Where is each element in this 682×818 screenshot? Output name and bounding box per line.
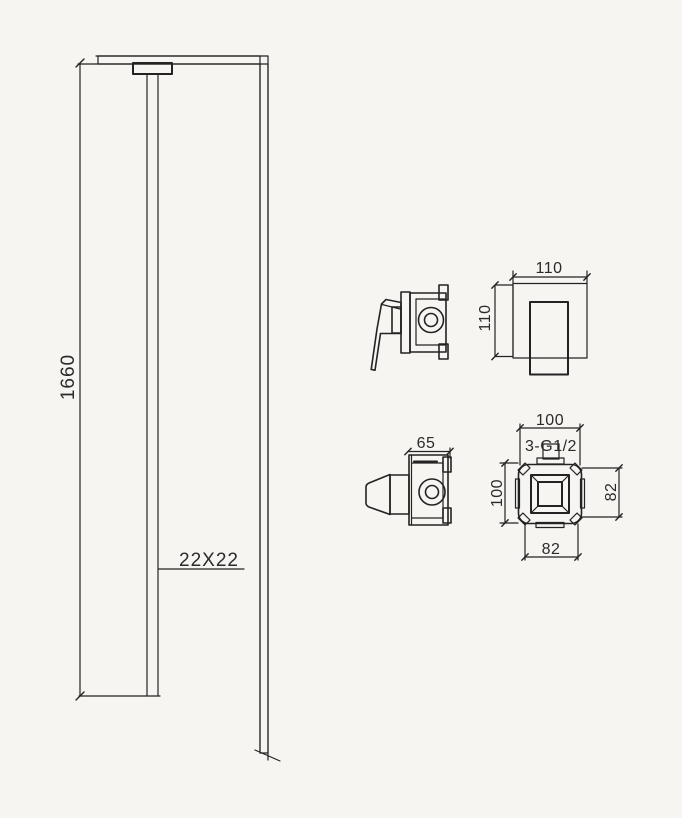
mixer-port-outer xyxy=(419,308,444,333)
diverter-ear-bottom xyxy=(443,508,451,523)
diverter-knob-cone xyxy=(366,475,390,515)
diverter-side-view: 65 xyxy=(366,435,453,525)
diverter-port-inner xyxy=(426,486,439,499)
plate-bottom-spacing-label: 82 xyxy=(542,541,561,558)
mixer-handle-lever xyxy=(371,300,401,371)
mixer-plate-edge xyxy=(401,292,410,353)
plate-tab-left xyxy=(516,479,520,508)
drawing-sheet: 1660 22X22 xyxy=(0,0,682,818)
pipe-section-label: 22X22 xyxy=(179,550,239,571)
thread-spec-label: 3-G1/2 xyxy=(525,438,577,455)
plate-front-view: 100 3-G1/2 100 82 82 xyxy=(489,412,622,560)
mixer-side-view xyxy=(371,285,448,370)
corner-bosses xyxy=(518,463,582,525)
wall-hatch xyxy=(260,64,268,753)
beveled-opening xyxy=(531,475,569,513)
mixer-neck xyxy=(392,307,401,333)
column-height-label: 1660 xyxy=(58,354,79,400)
diverter-depth-label: 65 xyxy=(417,435,436,452)
column-elevation-view: 1660 22X22 xyxy=(58,56,280,761)
diverter-port-outer xyxy=(419,479,445,505)
technical-drawing-canvas: 1660 22X22 xyxy=(0,0,682,818)
mixer-flange xyxy=(495,285,513,357)
mixer-width-label: 110 xyxy=(535,260,562,277)
diverter-neck xyxy=(390,475,409,514)
plate-width-dimension: 100 3-G1/2 xyxy=(517,412,583,465)
mounting-bracket xyxy=(133,63,172,74)
plate-bottom-dimension: 82 xyxy=(522,524,581,560)
ceiling-section xyxy=(78,56,268,64)
plate-right-spacing-label: 82 xyxy=(603,483,620,502)
diverter-body xyxy=(409,455,448,525)
plate-width-label: 100 xyxy=(536,412,564,429)
plate-tab-right xyxy=(581,479,585,508)
riser-pipe xyxy=(79,74,160,696)
mixer-port-inner xyxy=(425,314,438,327)
plate-height-dimension: 100 xyxy=(489,460,518,526)
wall-section xyxy=(255,56,280,761)
face-plate xyxy=(519,465,582,524)
mixer-height-label: 110 xyxy=(477,304,494,331)
ceiling-hatch xyxy=(98,56,260,64)
diverter-ear-top xyxy=(443,457,451,472)
plate-right-dimension: 82 xyxy=(582,465,622,520)
plate-height-label: 100 xyxy=(489,479,506,507)
pipe-section-leader: 22X22 xyxy=(158,550,244,571)
height-dimension: 1660 xyxy=(58,59,84,700)
mixer-width-dimension: 110 xyxy=(510,260,590,284)
mixer-front-view: 110 110 xyxy=(477,260,590,375)
mixer-front-body xyxy=(513,284,587,359)
mixer-front-handle xyxy=(530,302,568,375)
